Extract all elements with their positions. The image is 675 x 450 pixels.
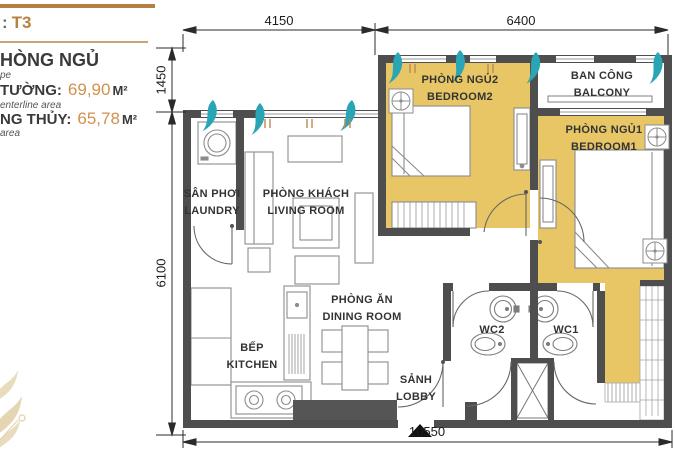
room-name-en: BEDROOM1 — [566, 139, 643, 156]
door-wc2-lower — [467, 362, 511, 406]
bedroom-count-heading: HÒNG NGỦ — [0, 50, 99, 71]
room-name-vi: SẢNH — [396, 372, 436, 389]
door-laundry — [194, 224, 234, 264]
seat-bottom — [295, 256, 339, 284]
room-label-bedroom2: PHÒNG NGỦ2 BEDROOM2 — [422, 72, 499, 106]
room-name-en: LIVING ROOM — [263, 203, 349, 220]
room-label-dining: PHÒNG ĂN DINING ROOM — [322, 292, 401, 326]
room-name-vi: BAN CÔNG — [571, 68, 633, 85]
room-name-en: BALCONY — [571, 85, 633, 102]
room-name-en: KITCHEN — [227, 357, 278, 374]
room-name-en: LOBBY — [396, 389, 436, 406]
dimension-top-right: 6400 — [507, 13, 536, 28]
wardrobe-bedroom2 — [392, 202, 476, 228]
dimension-left-upper: 1450 — [154, 66, 169, 95]
info-panel: :T3 HÒNG NGỦ pe TƯỜNG:69,90M² enterline … — [0, 0, 162, 450]
room-name-vi: PHÒNG ĂN — [322, 292, 401, 309]
unit-type-title: :T3 — [2, 13, 32, 33]
corridor-hatch — [605, 383, 640, 402]
room-name: WC2 — [479, 322, 504, 339]
dimension-bottom: 10550 — [409, 424, 445, 439]
stove-icon — [236, 386, 302, 414]
service-ledge — [640, 286, 664, 420]
room-label-wc2: WC2 — [479, 322, 504, 339]
room-name-vi: PHÒNG NGỦ2 — [422, 72, 499, 89]
room-label-living: PHÒNG KHÁCH LIVING ROOM — [263, 186, 349, 220]
kitchen-tall-unit — [284, 286, 310, 380]
room-label-laundry: SÂN PHƠI LAUNDRY — [184, 186, 240, 220]
carpet-area-value: 65,78 — [77, 109, 120, 128]
room-label-wc1: WC1 — [553, 322, 578, 339]
panel-divider-top — [0, 4, 155, 8]
carpet-area-unit: M² — [122, 112, 137, 127]
door-wc1-lower — [554, 362, 596, 404]
dimension-left-lower: 6100 — [154, 259, 169, 288]
washing-machine-icon — [198, 122, 236, 164]
unit-type-value: T3 — [12, 13, 32, 32]
room-label-kitchen: BẾP KITCHEN — [227, 340, 278, 374]
side-wardrobe-bedroom2 — [514, 108, 530, 170]
carpet-area-label: NG THỦY: — [0, 111, 71, 128]
wardrobe-bedroom1 — [540, 160, 556, 228]
room-name-vi: SÂN PHƠI — [184, 186, 240, 203]
tv-cabinet-right — [355, 193, 373, 263]
carpet-area-metric: NG THỦY:65,78M² — [0, 109, 137, 129]
brand-logo — [0, 352, 62, 450]
room-name: WC1 — [553, 322, 578, 339]
room-name-vi: BẾP — [227, 340, 278, 357]
room-label-balcony: BAN CÔNG BALCONY — [571, 68, 633, 102]
bed-bedroom2 — [392, 106, 470, 176]
sink-icon — [490, 296, 519, 322]
room-name-vi: PHÒNG NGỦ1 — [566, 122, 643, 139]
room-name-en: LAUNDRY — [184, 203, 240, 220]
tv-unit-top — [288, 136, 342, 162]
carpet-area-note: area — [0, 128, 20, 139]
centerline-area-value: 69,90 — [68, 80, 111, 99]
room-name-vi: PHÒNG KHÁCH — [263, 186, 349, 203]
panel-divider-mid — [0, 41, 148, 43]
centerline-area-unit: M² — [112, 83, 127, 98]
floorplan-page: :T3 HÒNG NGỦ pe TƯỜNG:69,90M² enterline … — [0, 0, 675, 450]
room-label-bedroom1: PHÒNG NGỦ1 BEDROOM1 — [566, 122, 643, 156]
room-name-en: BEDROOM2 — [422, 89, 499, 106]
dining-set — [322, 326, 388, 390]
centerline-area-label: TƯỜNG: — [0, 82, 62, 99]
unit-type-prefix: : — [2, 13, 8, 32]
dimension-top-left: 4150 — [265, 13, 294, 28]
room-label-lobby: SẢNH LOBBY — [396, 372, 436, 406]
shaft-x-icon — [517, 363, 548, 418]
centerline-area-metric: TƯỜNG:69,90M² — [0, 80, 128, 100]
room-name-en: DINING ROOM — [322, 309, 401, 326]
